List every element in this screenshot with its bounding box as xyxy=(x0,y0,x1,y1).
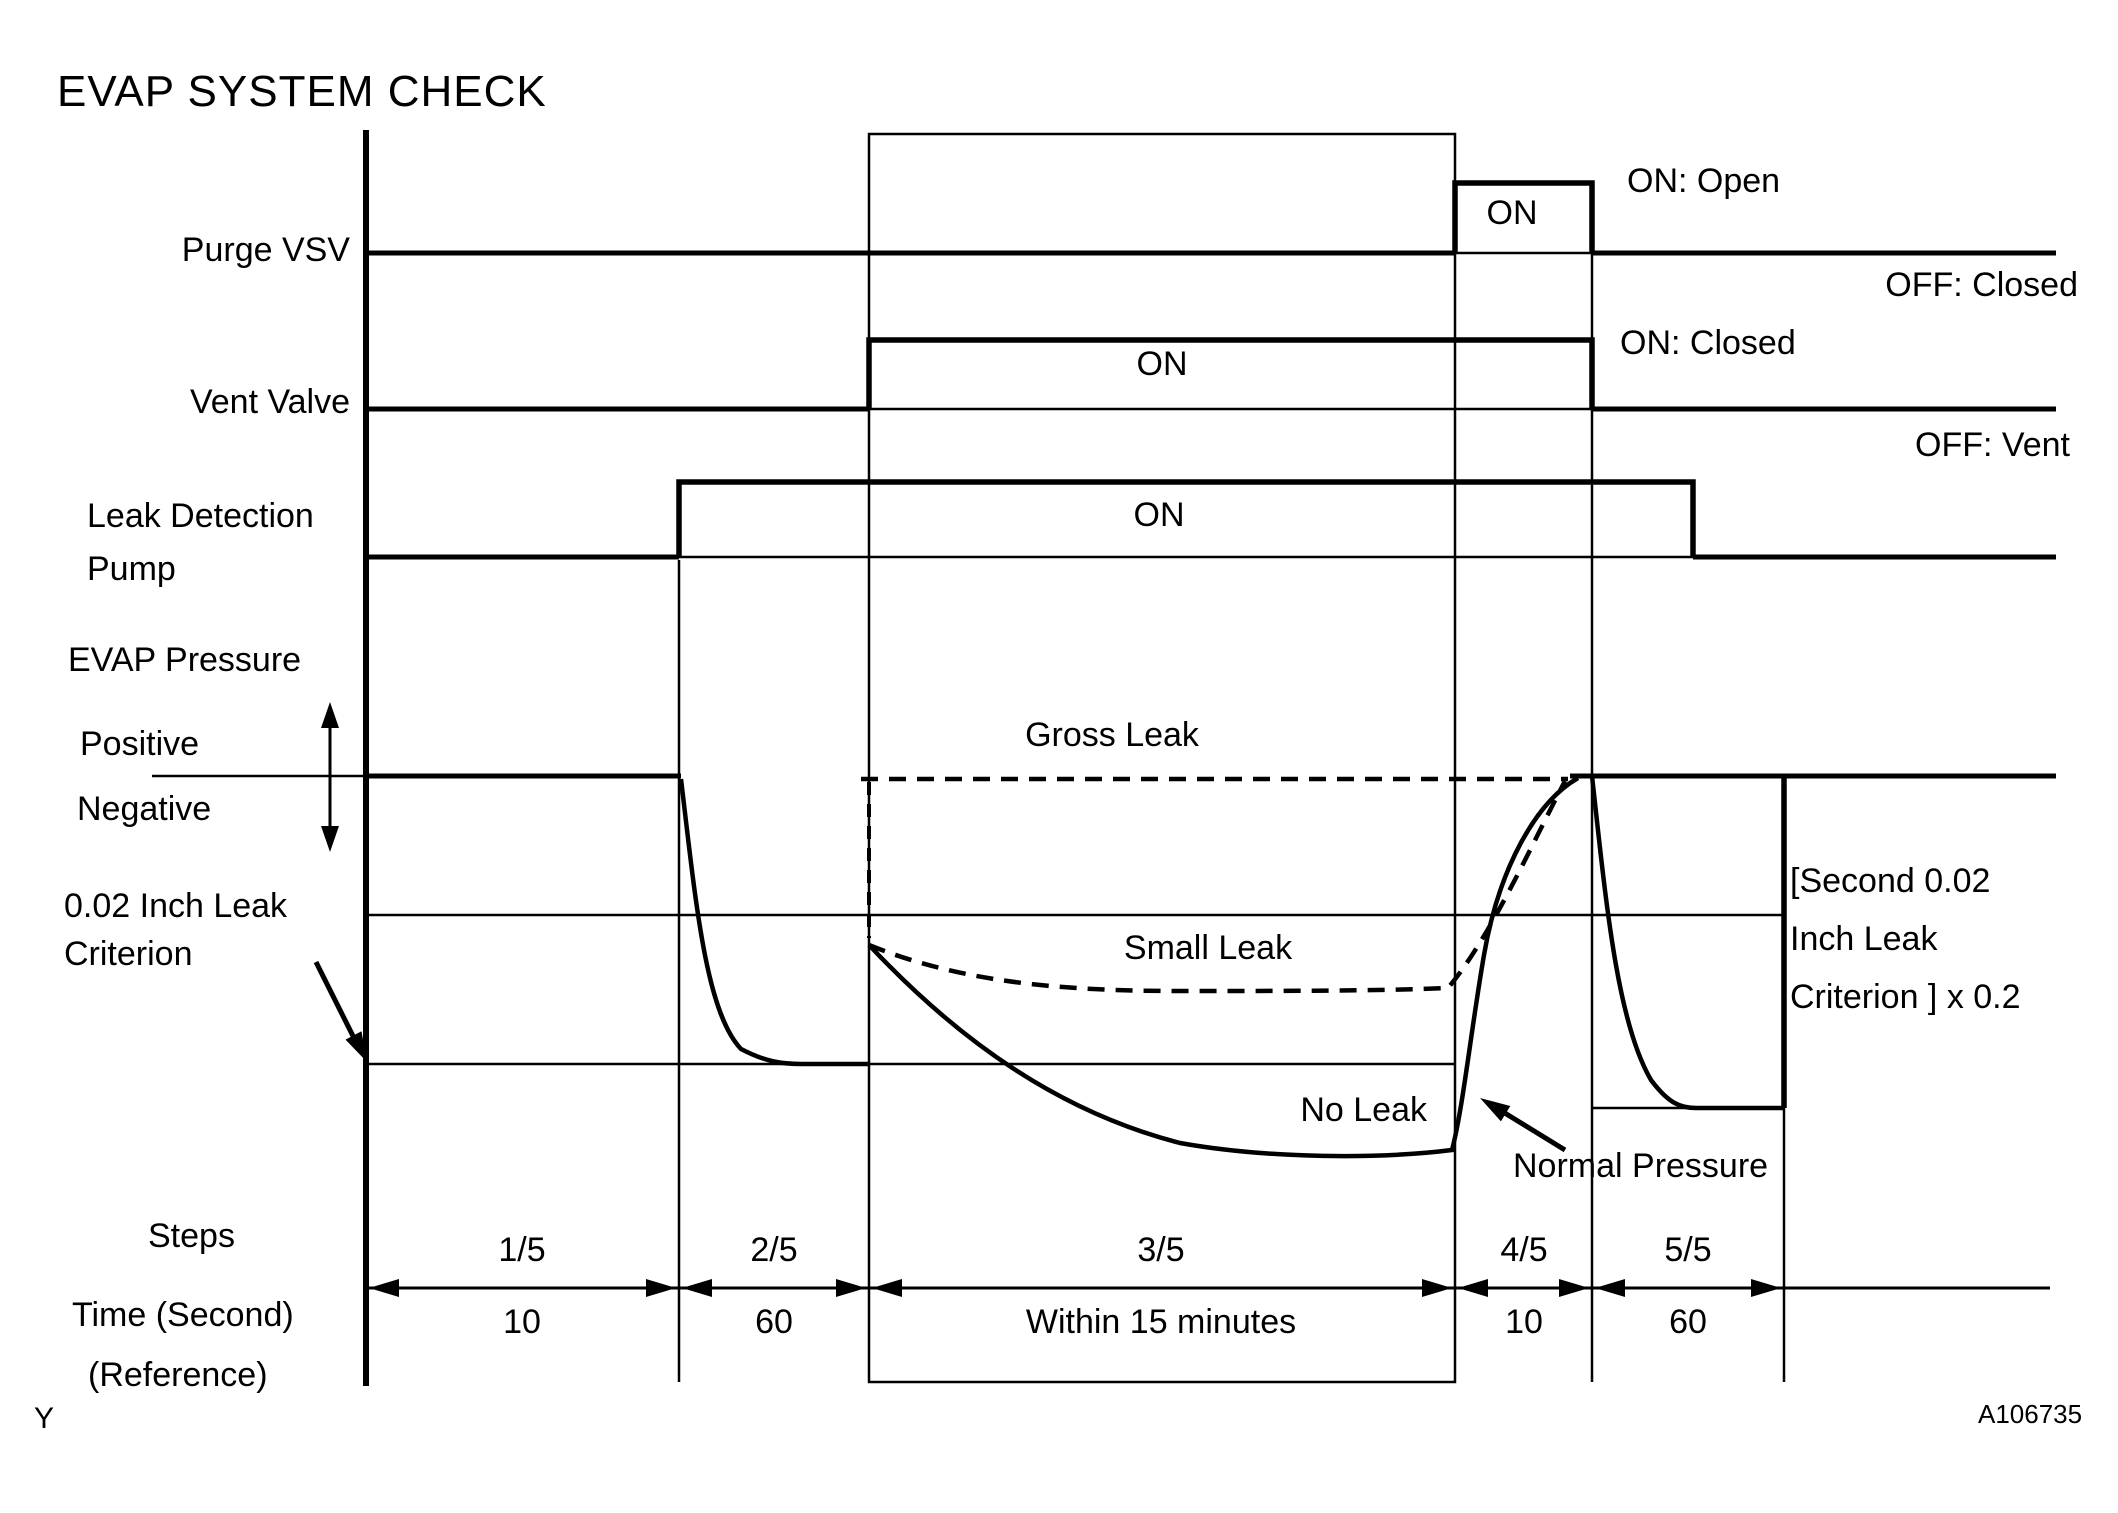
figure-id: A106735 xyxy=(1978,1400,2082,1429)
time-label: Time (Second) xyxy=(72,1297,294,1334)
diagram-title: EVAP SYSTEM CHECK xyxy=(57,68,547,116)
vent-on-label: ON xyxy=(1137,346,1188,383)
time-value-4: 10 xyxy=(1505,1304,1543,1341)
reference-label: (Reference) xyxy=(88,1357,268,1394)
dim-arrow-1R xyxy=(646,1279,676,1297)
small-leak-label: Small Leak xyxy=(1124,930,1292,967)
normal-pressure-arrow-head xyxy=(1480,1098,1510,1121)
time-value-2: 60 xyxy=(755,1304,793,1341)
step-label-2: 2/5 xyxy=(750,1232,797,1269)
vent-valve-label: Vent Valve xyxy=(190,384,350,421)
dim-arrow-3R xyxy=(1422,1279,1452,1297)
time-value-3: Within 15 minutes xyxy=(1026,1304,1296,1341)
pump-on-step xyxy=(679,482,1693,557)
normal-pressure-label: Normal Pressure xyxy=(1513,1148,1768,1185)
on-open-annotation: ON: Open xyxy=(1627,163,1780,200)
steps-label: Steps xyxy=(148,1218,235,1255)
on-closed-annotation: ON: Closed xyxy=(1620,325,1796,362)
dim-arrow-5L xyxy=(1595,1279,1625,1297)
updown-arrow-bottom-head xyxy=(321,826,339,852)
positive-label: Positive xyxy=(80,726,199,763)
purge-on-label: ON xyxy=(1487,195,1538,232)
negative-label: Negative xyxy=(77,791,211,828)
purge-vsv-label: Purge VSV xyxy=(182,232,350,269)
dim-arrow-4L xyxy=(1458,1279,1488,1297)
first-pulldown-curve xyxy=(681,779,869,1064)
leak-pump-label-2: Pump xyxy=(87,551,176,588)
dim-arrow-4R xyxy=(1559,1279,1589,1297)
diagram-geometry xyxy=(0,0,2118,1513)
step-label-3: 3/5 xyxy=(1137,1232,1184,1269)
dim-arrow-2R xyxy=(836,1279,866,1297)
no-leak-label: No Leak xyxy=(1300,1092,1427,1129)
criterion-arrow-shaft xyxy=(316,962,358,1046)
dim-arrow-2L xyxy=(682,1279,712,1297)
gross-leak-label: Gross Leak xyxy=(1025,717,1199,754)
off-closed-annotation: OFF: Closed xyxy=(1885,267,2078,304)
dim-arrow-3L xyxy=(872,1279,902,1297)
leak-pump-label-1: Leak Detection xyxy=(87,498,314,535)
dim-arrow-1L xyxy=(369,1279,399,1297)
y-marker: Y xyxy=(34,1402,54,1435)
evap-pressure-label: EVAP Pressure xyxy=(68,642,301,679)
step-label-5: 5/5 xyxy=(1664,1232,1711,1269)
second-criterion-line-2: Inch Leak xyxy=(1790,910,2021,968)
second-criterion-line-3: Criterion ] x 0.2 xyxy=(1790,968,2021,1026)
second-pulldown-curve xyxy=(1592,776,1784,1108)
criterion-label-1: 0.02 Inch Leak xyxy=(64,888,287,925)
vent-valve-on-step xyxy=(869,340,1592,409)
criterion-label-2: Criterion xyxy=(64,936,192,973)
pump-on-label: ON xyxy=(1134,497,1185,534)
step3-region-box xyxy=(869,134,1455,1382)
time-value-1: 10 xyxy=(503,1304,541,1341)
step-label-1: 1/5 xyxy=(498,1232,545,1269)
updown-arrow-top-head xyxy=(321,702,339,728)
step-label-4: 4/5 xyxy=(1500,1232,1547,1269)
evap-timing-diagram: EVAP SYSTEM CHECK Purge VSV Vent Valve L… xyxy=(0,0,2118,1513)
second-criterion-line-1: [Second 0.02 xyxy=(1790,852,2021,910)
off-vent-annotation: OFF: Vent xyxy=(1915,427,2070,464)
dim-arrow-5R xyxy=(1751,1279,1781,1297)
second-criterion-annotation: [Second 0.02 Inch Leak Criterion ] x 0.2 xyxy=(1790,852,2021,1026)
time-value-5: 60 xyxy=(1669,1304,1707,1341)
